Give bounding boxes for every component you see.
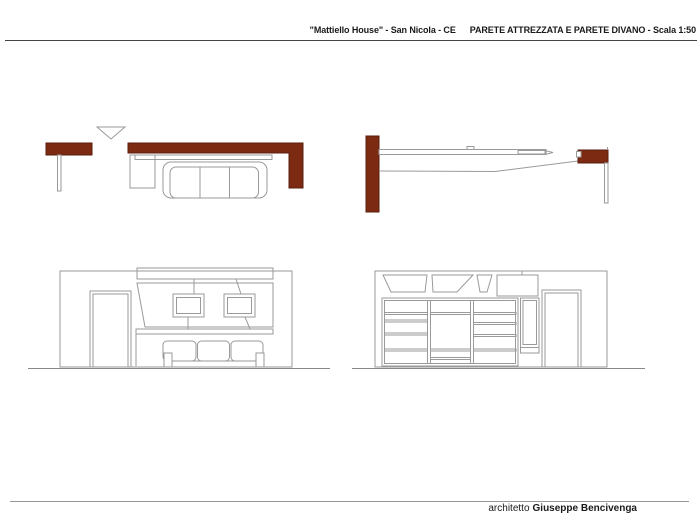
upper-cabinet-panel bbox=[432, 275, 473, 292]
wall-segment-left bbox=[46, 143, 92, 155]
architect-name: Giuseppe Bencivenga bbox=[533, 503, 637, 514]
shelf-line bbox=[385, 313, 428, 315]
frame-support-line bbox=[236, 279, 241, 294]
drawing-sheet: "Mattiello House" - San Nicola - CEPARET… bbox=[0, 0, 700, 525]
shelf-line bbox=[474, 349, 517, 351]
partition-plan bbox=[605, 163, 609, 203]
shelf-line bbox=[474, 313, 517, 315]
door-frame-inner bbox=[545, 293, 578, 367]
sofa-cushion bbox=[198, 341, 230, 361]
bookcase-divider bbox=[428, 301, 431, 364]
angled-panel bbox=[137, 283, 273, 327]
door-frame-inner bbox=[93, 294, 128, 367]
sheet-footer: architettoGiuseppe Bencivenga bbox=[488, 503, 637, 514]
bookcase-divider bbox=[471, 301, 474, 364]
plan-attrezzata-wall bbox=[366, 136, 608, 212]
wall-segment-vertical bbox=[366, 136, 379, 212]
shelf-line bbox=[431, 313, 471, 315]
door-frame-outer bbox=[90, 291, 131, 367]
shelf-line bbox=[385, 320, 428, 322]
bookcase-outer bbox=[382, 298, 518, 366]
door-frame-outer bbox=[542, 290, 581, 367]
wall-segment-l-shape bbox=[128, 143, 303, 188]
back-shelf-plan bbox=[135, 155, 272, 160]
wall-block-notch bbox=[577, 152, 582, 158]
room-outline bbox=[375, 271, 607, 367]
bookcase-inner bbox=[385, 301, 516, 364]
wall-block-right bbox=[578, 150, 608, 163]
upper-cabinet-panel bbox=[477, 275, 492, 292]
sofa-armrest bbox=[256, 353, 264, 367]
shelf-notch bbox=[467, 147, 474, 150]
sofa-base bbox=[172, 361, 256, 367]
picture-frame-inner bbox=[177, 298, 201, 314]
upper-cabinet-panel bbox=[383, 275, 427, 292]
door-leaf bbox=[58, 155, 62, 191]
lower-band bbox=[136, 329, 273, 334]
shelf-end-segment bbox=[518, 151, 545, 155]
picture-frame-inner bbox=[228, 298, 252, 314]
ceiling-band bbox=[137, 268, 273, 279]
shelf-line bbox=[431, 349, 471, 351]
upper-cabinet-panel bbox=[497, 275, 538, 296]
shelf-line bbox=[385, 349, 428, 351]
elevation-sofa-wall bbox=[28, 268, 330, 369]
sofa-armrest bbox=[164, 353, 172, 367]
elevation-attrezzata-wall bbox=[352, 271, 645, 369]
shelf-line bbox=[474, 323, 517, 325]
shelf-line bbox=[385, 333, 428, 335]
architect-role-label: architetto bbox=[488, 503, 529, 514]
sofa-seat-plan bbox=[170, 167, 259, 198]
drawing-canvas bbox=[0, 0, 700, 525]
tall-cabinet-inner bbox=[523, 301, 537, 345]
shelf-line bbox=[474, 335, 517, 337]
shelf-line bbox=[431, 358, 471, 360]
door-swing-symbol bbox=[97, 127, 125, 139]
counter-edge-line bbox=[379, 161, 578, 172]
plan-sofa-wall bbox=[46, 127, 303, 198]
